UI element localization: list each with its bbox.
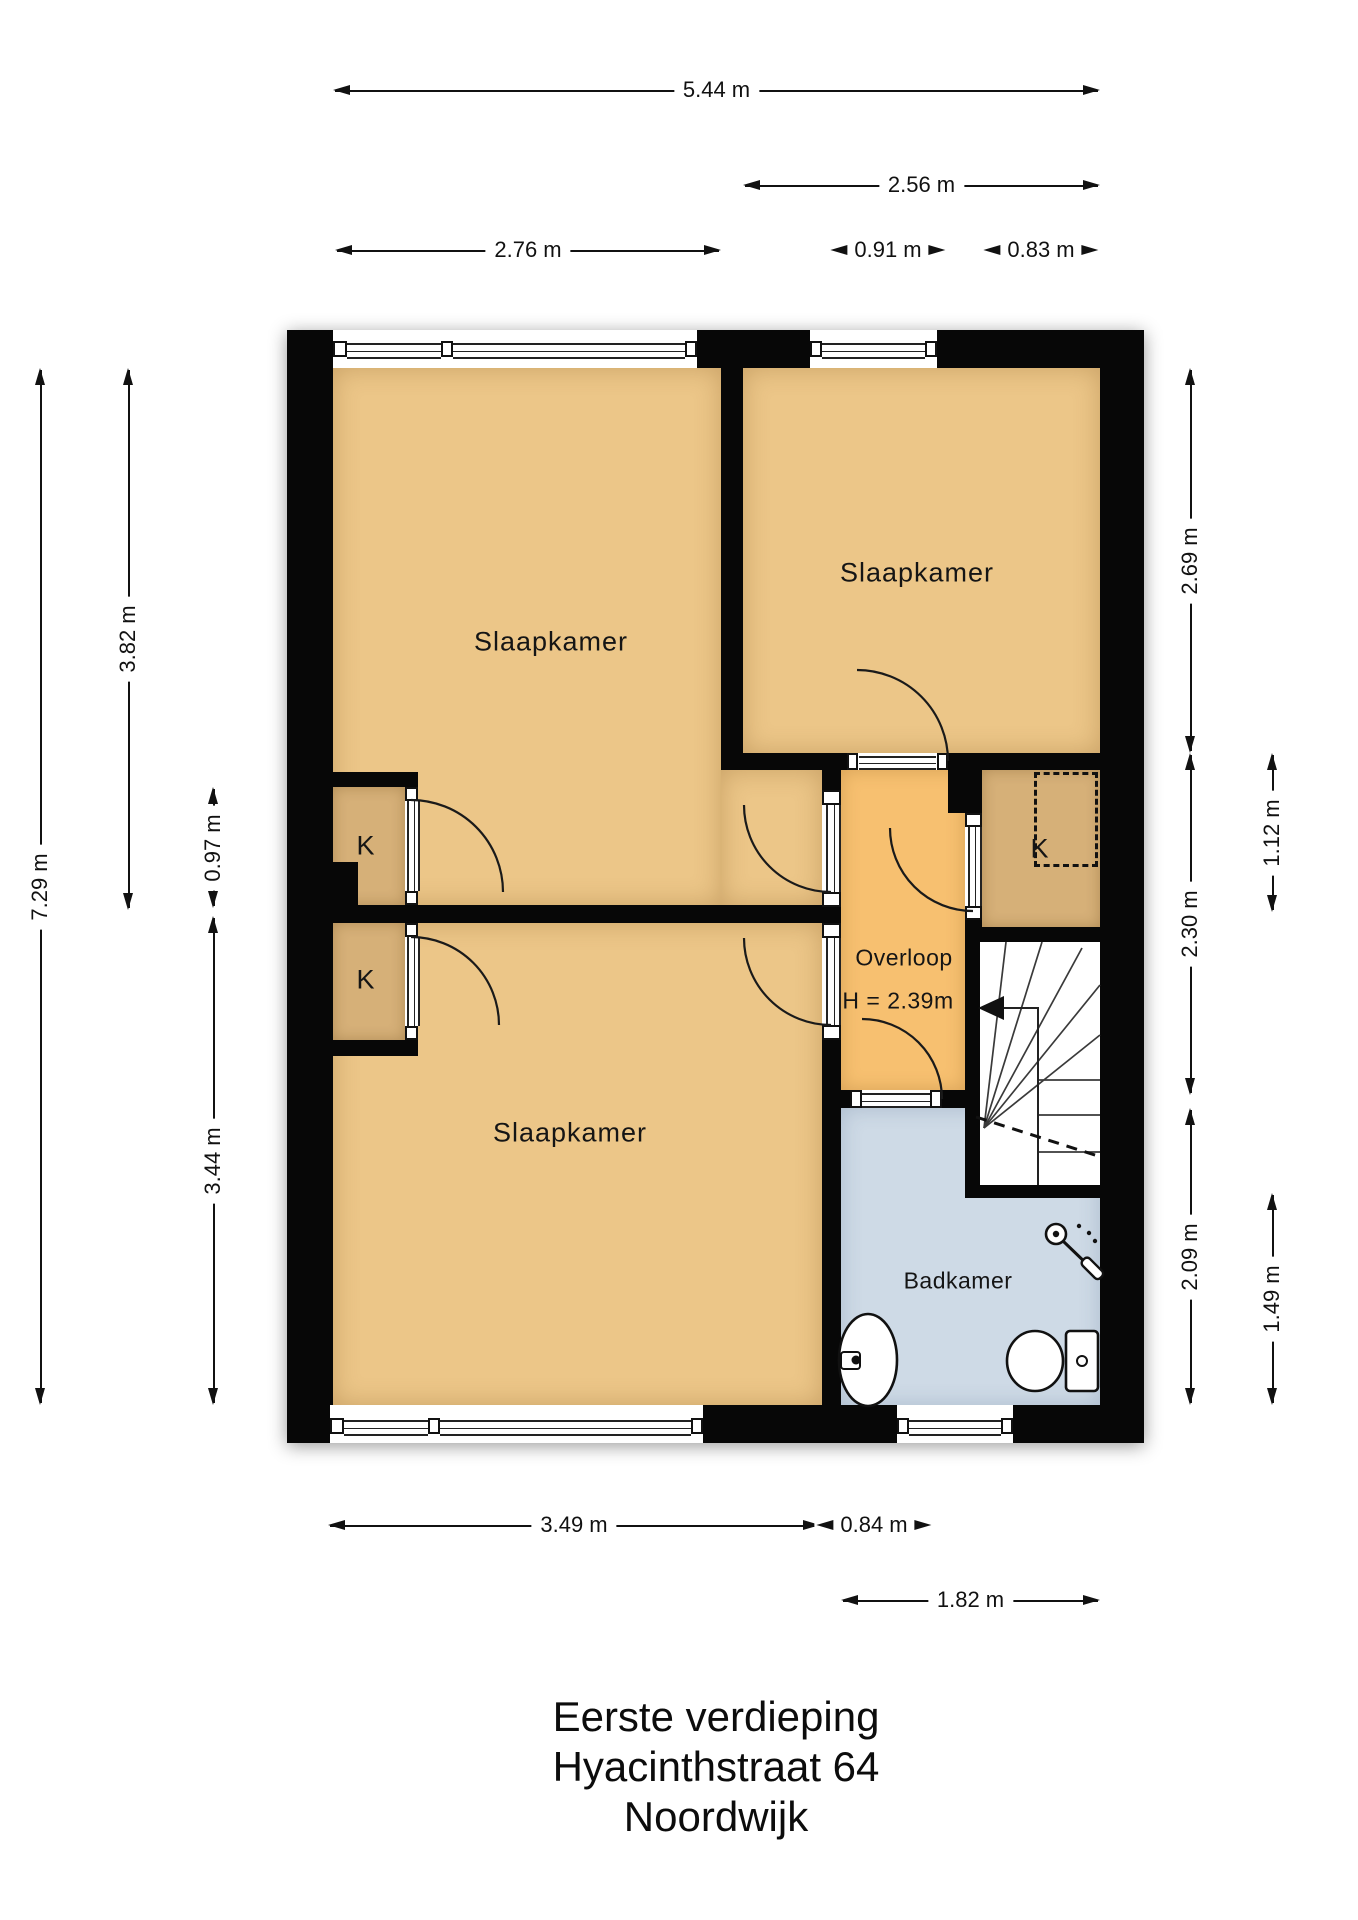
- label-bedroom-top-right: Slaapkamer: [840, 558, 994, 589]
- shower-icon: [1046, 1224, 1105, 1281]
- floor-plan: Slaapkamer Slaapkamer Slaapkamer Overloo…: [0, 0, 1358, 1920]
- dim-arrow-right-icon: [1082, 245, 1099, 255]
- label-closet-left-top: K: [356, 831, 375, 862]
- label-bathroom: Badkamer: [904, 1268, 1013, 1295]
- plan-title-floor: Eerste verdieping: [553, 1692, 880, 1742]
- dim-arrow-right-icon: [929, 245, 946, 255]
- label-bedroom-top-left: Slaapkamer: [474, 627, 628, 658]
- stairs-direction-arrow-icon: [978, 996, 1004, 1020]
- door-arc: [744, 938, 831, 1025]
- dimension-closet-right-height: 1.12 m: [1265, 753, 1279, 912]
- dim-arrow-left-icon: [830, 245, 847, 255]
- dim-arrow-left-icon: [983, 245, 1000, 255]
- door-arc: [744, 805, 831, 892]
- plan-vector-overlay: [0, 0, 1358, 1920]
- label-hallway: Overloop: [855, 945, 952, 972]
- dimension-total-height: 7.29 m: [33, 368, 47, 1405]
- door-arc: [857, 670, 948, 761]
- dimension-total-width: 5.44 m: [333, 83, 1100, 97]
- dimension-bathroom-lower-height: 1.49 m: [1265, 1193, 1279, 1405]
- stairs-treads: [984, 942, 1100, 1185]
- dimension-window2-width: 0.91 m: [828, 237, 947, 263]
- dimension-bathroom-width: 1.82 m: [841, 1593, 1100, 1607]
- door-arc: [411, 800, 503, 892]
- dimension-bedroom3-width: 3.49 m: [328, 1518, 820, 1532]
- sink-icon: [839, 1314, 897, 1406]
- plan-title: Eerste verdieping Hyacinthstraat 64 Noor…: [553, 1692, 880, 1842]
- dimension-closet1-height: 0.97 m: [206, 787, 220, 908]
- dimension-bedroom2-height: 2.69 m: [1183, 368, 1197, 753]
- dim-arrow-left-icon: [816, 1520, 833, 1530]
- dimension-bedroom2-width: 2.56 m: [743, 178, 1100, 192]
- dimension-hallway-width: 0.84 m: [814, 1512, 933, 1538]
- dimension-bedroom3-height: 3.44 m: [206, 916, 220, 1405]
- dimension-hallway-height: 2.30 m: [1183, 753, 1197, 1095]
- door-arc: [411, 937, 499, 1025]
- stairs-walk-line: [1000, 1008, 1038, 1185]
- label-closet-right: K: [1030, 834, 1049, 865]
- door-arc: [890, 828, 973, 911]
- toilet-icon: [1007, 1331, 1098, 1391]
- door-arc: [862, 1019, 942, 1099]
- plan-title-city: Noordwijk: [553, 1792, 880, 1842]
- label-bedroom-bottom-left: Slaapkamer: [493, 1118, 647, 1149]
- dimension-bedroom1-height: 3.82 m: [121, 368, 135, 910]
- plan-title-address: Hyacinthstraat 64: [553, 1742, 880, 1792]
- label-hallway-height: H = 2.39m: [842, 988, 953, 1015]
- floor-plan-screenshot: { "title": { "line1": "Eerste verdieping…: [0, 0, 1358, 1920]
- dimension-window1-width: 2.76 m: [335, 243, 721, 257]
- dimension-bathroom-height: 2.09 m: [1183, 1108, 1197, 1405]
- label-closet-left-bottom: K: [356, 965, 375, 996]
- dim-arrow-right-icon: [915, 1520, 932, 1530]
- dimension-closet-right-width: 0.83 m: [981, 237, 1100, 263]
